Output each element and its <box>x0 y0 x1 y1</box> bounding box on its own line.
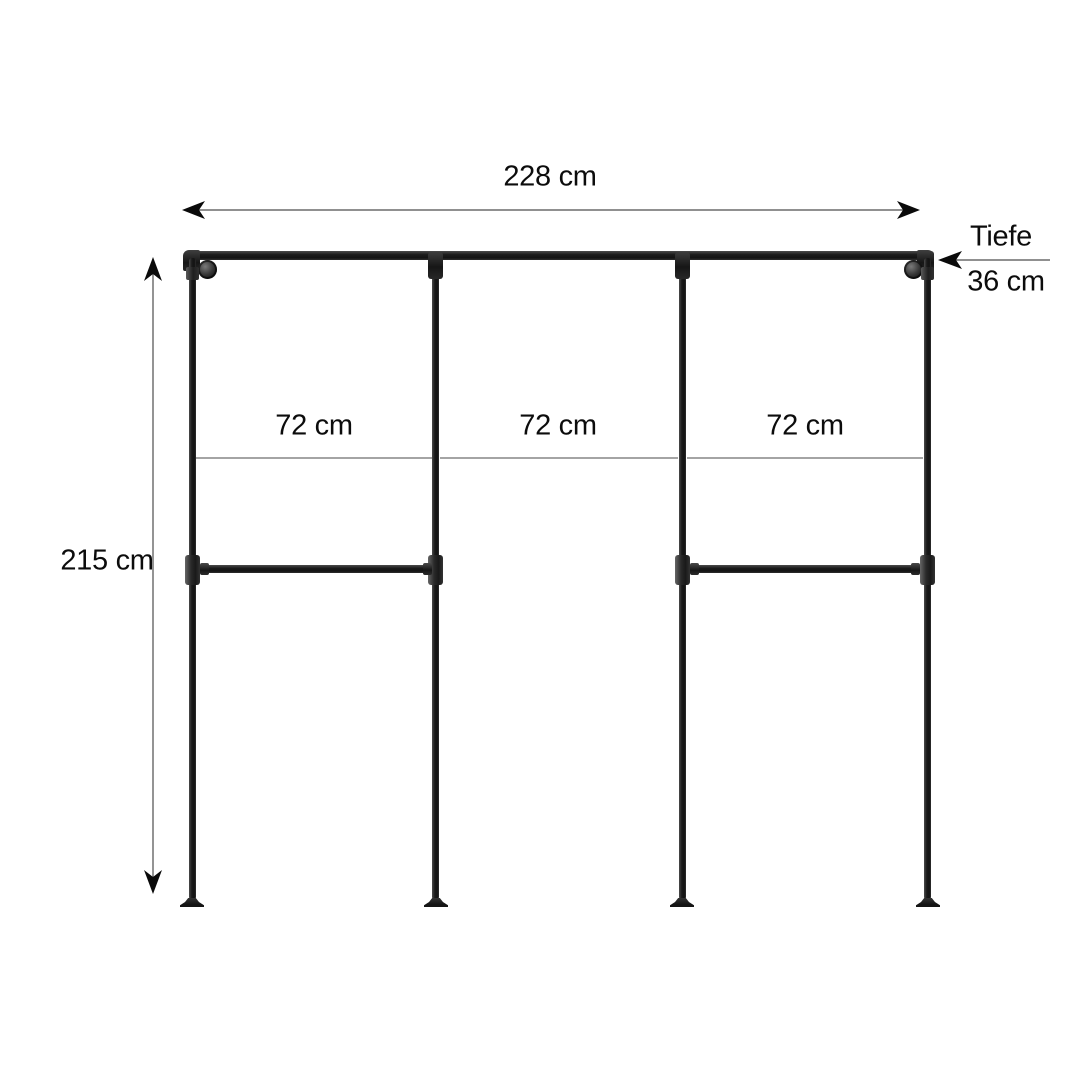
tee-fitting-top-2 <box>428 252 443 279</box>
rail-collar-3 <box>690 563 699 575</box>
section-width-label-left: 72 cm <box>275 410 352 443</box>
tee-fitting-top-3 <box>675 252 690 279</box>
rail-collar-1 <box>200 563 209 575</box>
hanging-rail-left-section <box>192 565 436 573</box>
section-width-label-middle: 72 cm <box>519 410 596 443</box>
top-rail-pipe <box>184 251 934 260</box>
wall-mount-flange-left <box>198 260 217 279</box>
depth-value-label: 36 cm <box>967 266 1044 299</box>
tee-fitting-mid-3 <box>675 555 690 585</box>
section-width-label-right: 72 cm <box>766 410 843 443</box>
tee-fitting-mid-4 <box>920 555 935 585</box>
union-fitting-right <box>921 267 934 280</box>
union-fitting-left <box>186 267 199 280</box>
total-height-label: 215 cm <box>60 545 153 578</box>
total-width-label: 228 cm <box>503 161 596 194</box>
rail-collar-2 <box>423 563 432 575</box>
hanging-rail-right-section <box>682 565 928 573</box>
rack-dimension-diagram: 228 cm 215 cm Tiefe 36 cm 72 cm 72 cm 72… <box>0 0 1074 1074</box>
tee-fitting-mid-1 <box>185 555 200 585</box>
depth-name-label: Tiefe <box>970 221 1032 254</box>
rail-collar-4 <box>911 563 920 575</box>
